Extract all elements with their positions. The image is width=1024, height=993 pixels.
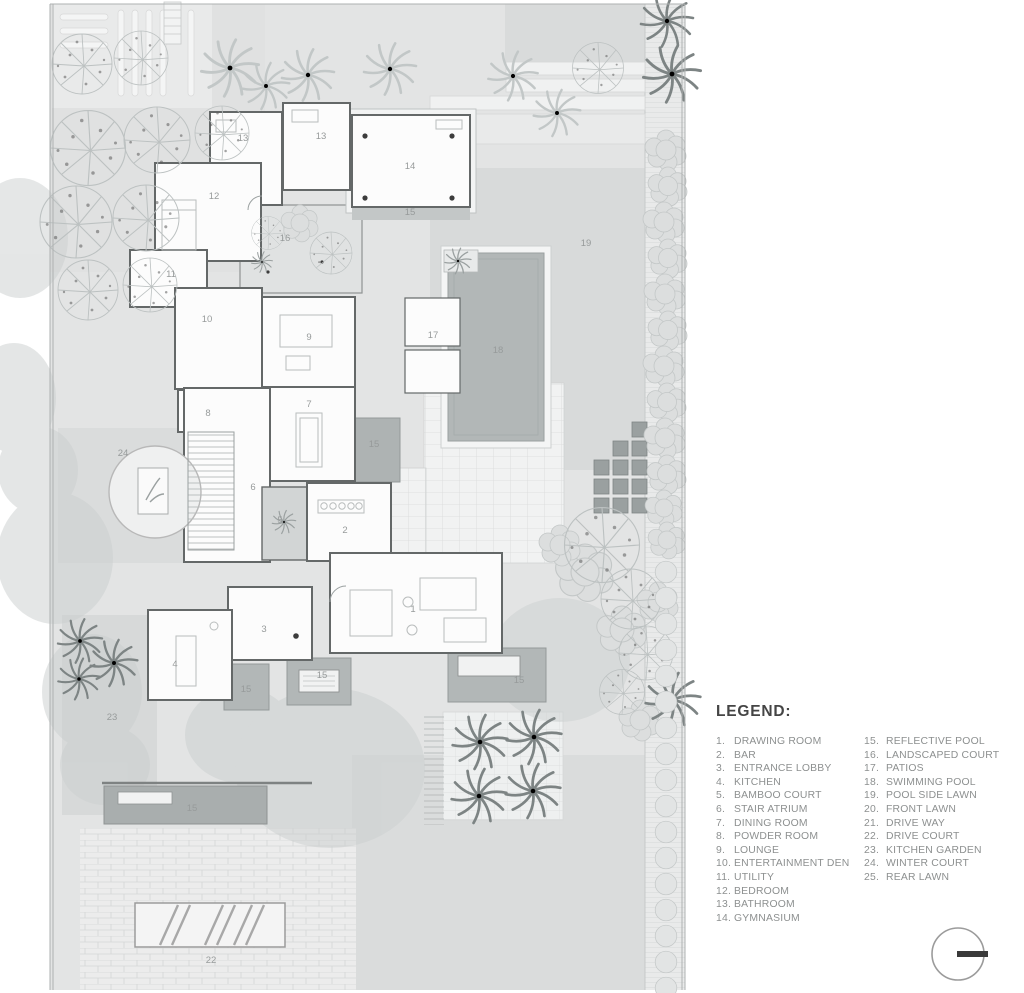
legend-item-number: 9.	[716, 844, 734, 858]
legend-item-number: 14.	[716, 912, 734, 926]
plan-label-3: 3	[261, 624, 266, 635]
plan-label-15: 15	[317, 670, 328, 681]
legend-item: 20.FRONT LAWN	[864, 803, 1016, 817]
legend-item-label: POWDER ROOM	[734, 830, 818, 844]
plan-label-22: 22	[206, 955, 217, 966]
legend-item: 13.BATHROOM	[716, 898, 864, 912]
legend-item: 3.ENTRANCE LOBBY	[716, 762, 864, 776]
plan-label-15: 15	[514, 675, 525, 686]
room-bedroom	[155, 163, 261, 261]
legend-item-number: 22.	[864, 830, 886, 844]
hedge-row	[655, 561, 677, 993]
legend-item-number: 18.	[864, 776, 886, 790]
legend-item-number: 19.	[864, 789, 886, 803]
legend-column-2: 15.REFLECTIVE POOL16.LANDSCAPED COURT17.…	[864, 735, 1016, 925]
legend-item: 25.REAR LAWN	[864, 871, 1016, 885]
plan-label-5: 5	[277, 515, 282, 526]
legend-item-label: REFLECTIVE POOL	[886, 735, 985, 749]
legend-item-label: BAMBOO COURT	[734, 789, 822, 803]
plan-label-15: 15	[241, 684, 252, 695]
gate-symbol	[135, 903, 285, 947]
plan-label-17: 17	[428, 330, 439, 341]
plan-label-6: 6	[250, 482, 255, 493]
legend-item-number: 25.	[864, 871, 886, 885]
legend-item-number: 16.	[864, 749, 886, 763]
room-patio-2	[405, 350, 460, 393]
legend-item-number: 15.	[864, 735, 886, 749]
legend-item-number: 5.	[716, 789, 734, 803]
legend-item: 17.PATIOS	[864, 762, 1016, 776]
legend-columns: 1.DRAWING ROOM2.BAR3.ENTRANCE LOBBY4.KIT…	[716, 735, 1016, 925]
legend-item-label: GYMNASIUM	[734, 912, 800, 926]
legend-item: 8.POWDER ROOM	[716, 830, 864, 844]
reflective-pool-kitchen	[287, 658, 351, 705]
legend-item-label: ENTERTAINMENT DEN	[734, 857, 849, 871]
room-entertainment-den	[175, 288, 262, 389]
legend-item-number: 1.	[716, 735, 734, 749]
legend-item-number: 2.	[716, 749, 734, 763]
plan-label-9: 9	[306, 332, 311, 343]
north-indicator	[932, 928, 988, 980]
legend-item-number: 23.	[864, 844, 886, 858]
planting-beds	[52, 4, 212, 108]
legend-item: 24.WINTER COURT	[864, 857, 1016, 871]
legend-item-number: 4.	[716, 776, 734, 790]
legend-item-label: KITCHEN	[734, 776, 781, 790]
legend-item-label: STAIR ATRIUM	[734, 803, 808, 817]
room-bar	[307, 483, 391, 561]
legend-item-number: 24.	[864, 857, 886, 871]
legend-item: 19.POOL SIDE LAWN	[864, 789, 1016, 803]
plan-label-10: 10	[202, 314, 213, 325]
legend-title: LEGEND:	[716, 703, 1016, 721]
legend-item: 7.DINING ROOM	[716, 817, 864, 831]
legend-item-number: 8.	[716, 830, 734, 844]
legend-item-label: FRONT LAWN	[886, 803, 956, 817]
room-entrance-lobby	[228, 587, 312, 660]
legend-item-label: DRAWING ROOM	[734, 735, 821, 749]
reflective-pool-mid	[352, 418, 400, 482]
legend-item: 22.DRIVE COURT	[864, 830, 1016, 844]
legend-item-label: LANDSCAPED COURT	[886, 749, 999, 763]
plan-label-2: 2	[342, 525, 347, 536]
plan-label-15: 15	[187, 803, 198, 814]
legend-item-label: UTILITY	[734, 871, 774, 885]
legend-item-number: 3.	[716, 762, 734, 776]
plan-label-15: 15	[405, 207, 416, 218]
plan-label-7: 7	[306, 399, 311, 410]
legend-item: 23.KITCHEN GARDEN	[864, 844, 1016, 858]
reflective-pool-east	[448, 648, 546, 702]
plan-label-13: 13	[238, 133, 249, 144]
plan-label-24: 24	[118, 448, 129, 459]
legend-item-label: WINTER COURT	[886, 857, 969, 871]
legend-item-label: REAR LAWN	[886, 871, 949, 885]
legend-item: 1.DRAWING ROOM	[716, 735, 864, 749]
legend-item: 14.GYMNASIUM	[716, 912, 864, 926]
legend-item: 4.KITCHEN	[716, 776, 864, 790]
legend-item-label: DINING ROOM	[734, 817, 808, 831]
legend-item: 12.BEDROOM	[716, 885, 864, 899]
garden-ladder-path	[164, 2, 181, 44]
garden-steps	[424, 715, 444, 825]
legend-item: 15.REFLECTIVE POOL	[864, 735, 1016, 749]
legend-item-label: SWIMMING POOL	[886, 776, 976, 790]
room-bathroom-2	[283, 103, 350, 190]
legend-item-number: 17.	[864, 762, 886, 776]
legend-item-label: DRIVE WAY	[886, 817, 945, 831]
plan-label-14: 14	[405, 161, 416, 172]
legend-item: 6.STAIR ATRIUM	[716, 803, 864, 817]
plan-label-13: 13	[316, 131, 327, 142]
legend-item: 11.UTILITY	[716, 871, 864, 885]
legend-item: 21.DRIVE WAY	[864, 817, 1016, 831]
winter-court	[109, 446, 201, 538]
legend-item-label: BEDROOM	[734, 885, 789, 899]
plan-label-18: 18	[493, 345, 504, 356]
legend-item: 2.BAR	[716, 749, 864, 763]
legend-item-label: POOL SIDE LAWN	[886, 789, 977, 803]
plan-label-23: 23	[107, 712, 118, 723]
legend-item-number: 12.	[716, 885, 734, 899]
plan-label-4: 4	[172, 659, 177, 670]
legend-item: 18.SWIMMING POOL	[864, 776, 1016, 790]
legend-column-1: 1.DRAWING ROOM2.BAR3.ENTRANCE LOBBY4.KIT…	[716, 735, 864, 925]
legend-item: 5.BAMBOO COURT	[716, 789, 864, 803]
legend-item-number: 7.	[716, 817, 734, 831]
legend: LEGEND: 1.DRAWING ROOM2.BAR3.ENTRANCE LO…	[716, 703, 1016, 925]
legend-item-label: ENTRANCE LOBBY	[734, 762, 832, 776]
palm-court	[443, 712, 563, 820]
legend-item: 10.ENTERTAINMENT DEN	[716, 857, 864, 871]
plan-label-8: 8	[205, 408, 210, 419]
legend-item-label: BATHROOM	[734, 898, 795, 912]
legend-item-number: 6.	[716, 803, 734, 817]
plan-label-16: 16	[280, 233, 291, 244]
plan-label-11: 11	[166, 269, 176, 280]
legend-item-number: 10.	[716, 857, 734, 871]
plan-label-1: 1	[410, 604, 415, 615]
plan-label-12: 12	[209, 191, 220, 202]
legend-item: 9.LOUNGE	[716, 844, 864, 858]
legend-item-label: DRIVE COURT	[886, 830, 960, 844]
legend-item-label: PATIOS	[886, 762, 924, 776]
legend-item-number: 11.	[716, 871, 734, 885]
legend-item-label: LOUNGE	[734, 844, 779, 858]
legend-item-number: 21.	[864, 817, 886, 831]
legend-item: 16.LANDSCAPED COURT	[864, 749, 1016, 763]
legend-item-label: KITCHEN GARDEN	[886, 844, 982, 858]
legend-item-number: 20.	[864, 803, 886, 817]
plan-label-15: 15	[369, 439, 380, 450]
floor-plan-page: 1313141215161911109171887241565213415151…	[0, 0, 1024, 993]
plan-label-19: 19	[581, 238, 592, 249]
legend-item-number: 13.	[716, 898, 734, 912]
legend-item-label: BAR	[734, 749, 756, 763]
